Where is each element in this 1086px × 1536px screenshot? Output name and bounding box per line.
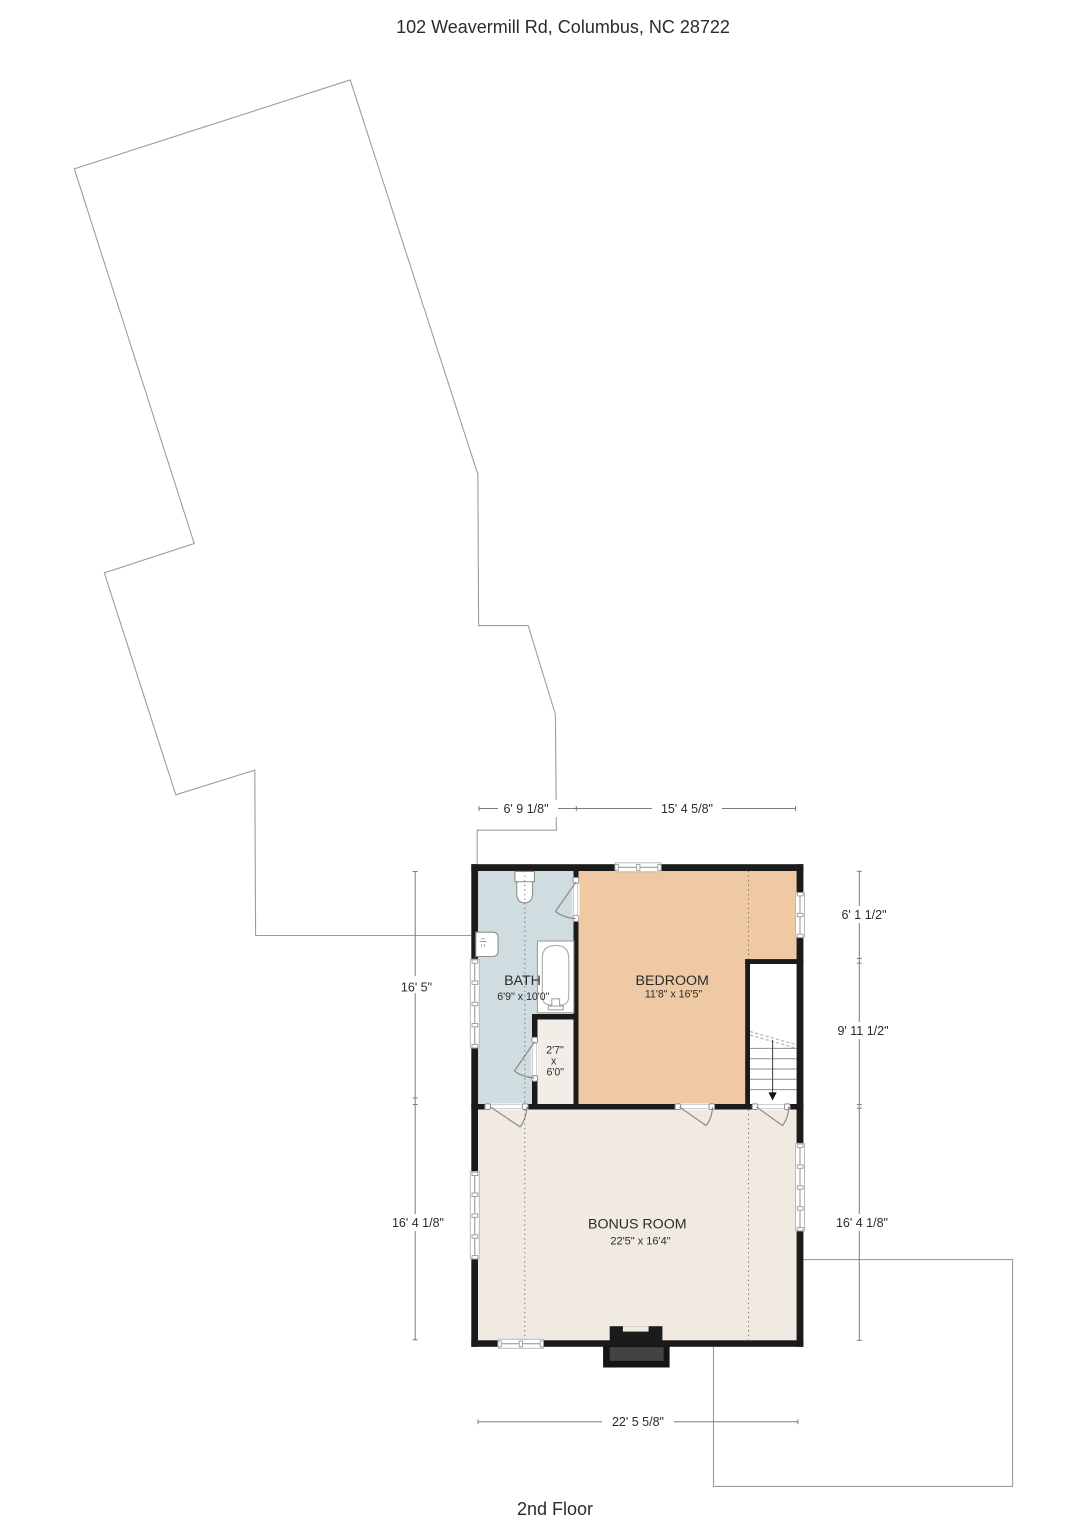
svg-text:BATH: BATH [504, 973, 541, 989]
svg-text:16' 5": 16' 5" [401, 981, 432, 995]
svg-text:9' 11 1/2": 9' 11 1/2" [837, 1024, 888, 1038]
svg-text:6' 1 1/2": 6' 1 1/2" [841, 908, 886, 922]
svg-text:102 Weavermill Rd, Columbus, N: 102 Weavermill Rd, Columbus, NC 28722 [396, 17, 730, 37]
svg-text:6'9" x 10'0": 6'9" x 10'0" [497, 991, 549, 1003]
svg-text:16' 4 1/8": 16' 4 1/8" [392, 1216, 444, 1230]
svg-text:6' 9 1/8": 6' 9 1/8" [503, 802, 548, 816]
svg-text:22' 5 5/8": 22' 5 5/8" [612, 1415, 664, 1429]
svg-text:16' 4 1/8": 16' 4 1/8" [836, 1216, 888, 1230]
svg-text:22'5" x 16'4": 22'5" x 16'4" [610, 1236, 670, 1248]
svg-text:BEDROOM: BEDROOM [636, 973, 709, 989]
svg-text:15' 4 5/8": 15' 4 5/8" [661, 802, 713, 816]
svg-text:BONUS ROOM: BONUS ROOM [588, 1217, 687, 1233]
svg-text:11'8" x 16'5": 11'8" x 16'5" [645, 988, 703, 1000]
svg-text:6'0": 6'0" [547, 1067, 565, 1079]
svg-text:2nd Floor: 2nd Floor [517, 1499, 593, 1519]
